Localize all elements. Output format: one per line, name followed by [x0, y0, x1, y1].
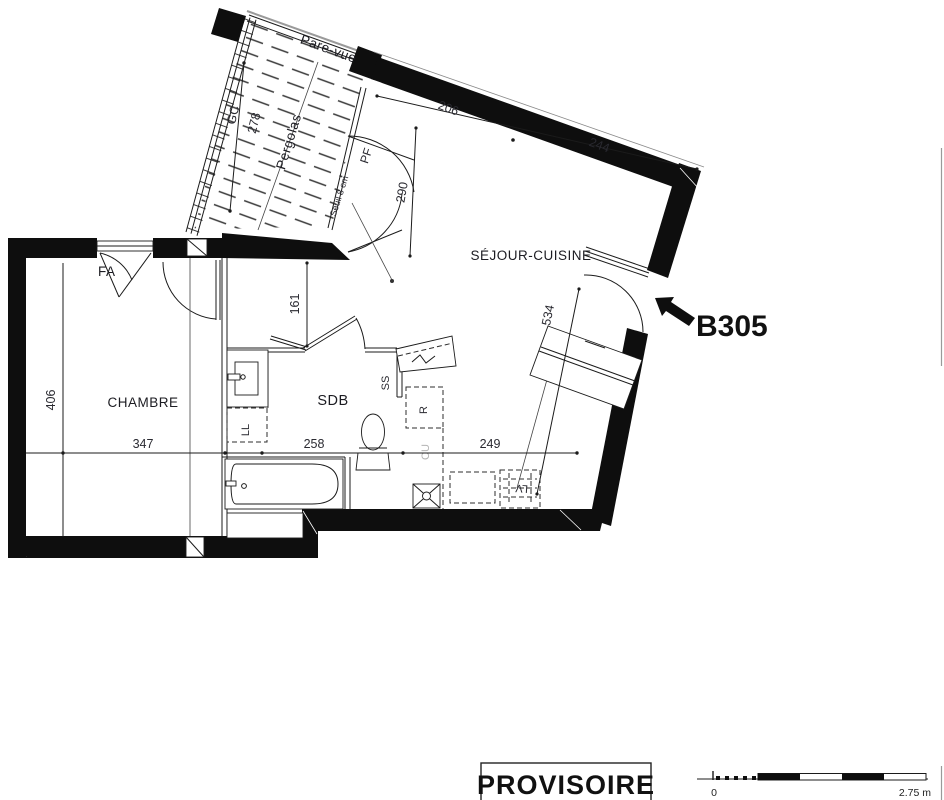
wall-balcony-bottom — [222, 233, 350, 260]
fa-window: FA — [97, 241, 153, 297]
wall-chambre-top-left — [8, 238, 97, 258]
sdb-label: SDB — [317, 393, 348, 409]
stamp-label: PROVISOIRE — [477, 770, 655, 800]
provisoire-stamp: PROVISOIRE — [477, 763, 655, 800]
entry-arrow-icon — [655, 297, 695, 326]
toilet — [356, 414, 390, 470]
scale-bar: 0 2.75 m — [697, 771, 931, 799]
lv-label: LV — [514, 482, 528, 495]
dim-347-label: 347 — [133, 437, 154, 451]
floorplan-drawing: 278 GC Pergolas Pare-vue — [0, 0, 944, 800]
ll-label: LL — [240, 424, 252, 436]
dim-406-label: 406 — [44, 390, 58, 411]
dim-290-label: 290 — [393, 181, 410, 204]
dim-534-label: 534 — [539, 303, 557, 326]
towel-radiator: SS — [380, 336, 456, 390]
chambre-label: CHAMBRE — [107, 395, 178, 410]
wall-top — [371, 57, 700, 194]
entry-door — [584, 275, 643, 332]
kitchen-sink — [413, 484, 440, 508]
unit-tag: B305 — [655, 297, 768, 343]
wall-bottom-kitchen — [312, 509, 604, 531]
r-label: R — [418, 406, 430, 414]
dim-161-label: 161 — [288, 294, 302, 315]
dim-258-label: 258 — [304, 437, 325, 451]
wall-bottom — [8, 536, 318, 558]
unit-label: B305 — [696, 310, 768, 343]
sdb-door — [270, 316, 365, 351]
wall-left — [8, 238, 26, 558]
fridge: R — [406, 387, 443, 428]
floorplan-page: 278 GC Pergolas Pare-vue — [0, 0, 944, 800]
cu-label: CU — [420, 444, 432, 460]
dim-249-label: 249 — [480, 437, 501, 451]
sejour-label: SÉJOUR-CUISINE — [470, 248, 591, 263]
fa-label: FA — [98, 264, 116, 279]
sejour-window — [584, 247, 650, 277]
scale-max-label: 2.75 m — [899, 787, 931, 799]
washing-machine: LL — [227, 408, 267, 442]
chambre-door — [163, 260, 220, 320]
ss-label: SS — [380, 376, 392, 391]
sink — [227, 350, 268, 407]
scale-zero-label: 0 — [711, 787, 717, 799]
